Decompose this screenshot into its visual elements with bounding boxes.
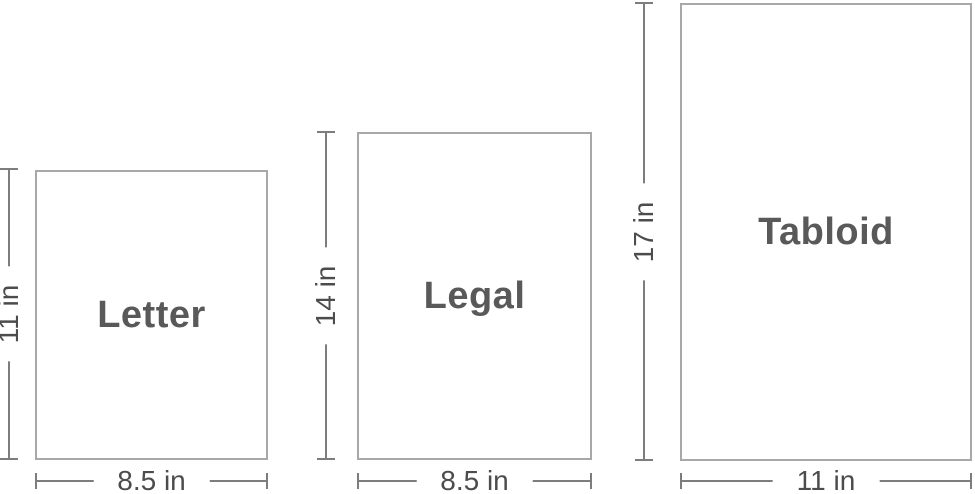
letter-width-dimension: 8.5 in <box>35 473 268 489</box>
dimension-tick <box>635 459 653 461</box>
letter-height-label: 11 in <box>0 267 25 362</box>
dimension-tick <box>266 473 268 489</box>
paper-size-comparison-diagram: 11 in Letter 8.5 in 14 in Legal 8.5 in <box>0 0 975 494</box>
tabloid-height-dimension: 17 in <box>635 2 653 461</box>
legal-height-dimension: 14 in <box>317 131 335 460</box>
dimension-tick <box>317 458 335 460</box>
legal-height-label: 14 in <box>310 247 342 344</box>
dimension-tick <box>970 473 972 489</box>
tabloid-name-label: Tabloid <box>758 211 894 254</box>
legal-width-dimension: 8.5 in <box>357 473 592 489</box>
tabloid-sheet: Tabloid <box>680 3 972 461</box>
legal-name-label: Legal <box>424 275 526 318</box>
tabloid-width-dimension: 11 in <box>680 473 972 489</box>
letter-sheet: Letter <box>35 170 268 460</box>
legal-width-label: 8.5 in <box>416 465 533 494</box>
legal-sheet: Legal <box>357 132 592 460</box>
dimension-tick <box>0 458 18 460</box>
letter-width-label: 8.5 in <box>93 465 210 494</box>
letter-name-label: Letter <box>97 294 206 337</box>
letter-height-dimension: 11 in <box>0 168 18 460</box>
tabloid-height-label: 17 in <box>628 183 660 280</box>
tabloid-width-label: 11 in <box>773 465 880 494</box>
dimension-tick <box>590 473 592 489</box>
